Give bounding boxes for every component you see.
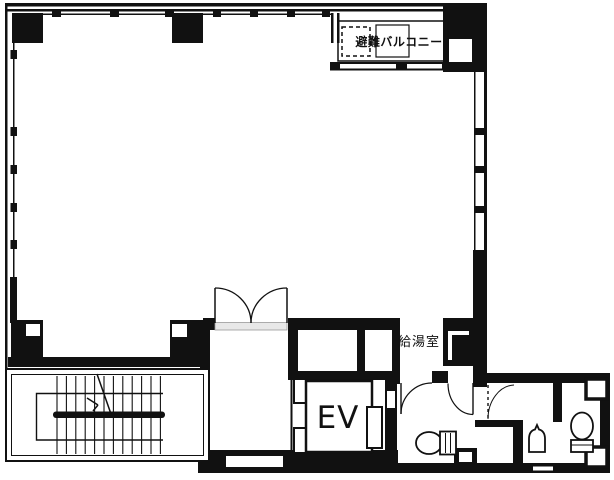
column-mid-south-notch	[172, 324, 187, 337]
toilet-west	[416, 432, 456, 455]
south-wall-right-segment	[288, 318, 400, 330]
hall-south-wall-slot	[226, 456, 283, 467]
elevator-label: EV	[317, 400, 360, 436]
floor-plan: 避難バルコニー 給湯室	[0, 0, 614, 480]
mullion	[322, 12, 330, 18]
wing-partition-east	[553, 383, 562, 422]
column-top-center	[172, 13, 203, 43]
wing-south-wall	[395, 463, 610, 473]
mullion	[474, 128, 487, 135]
double-door-sill	[215, 323, 287, 331]
balcony-partition-line-1	[331, 13, 334, 43]
wing-partition-horizontal	[475, 420, 523, 427]
column-top-right-window-notch	[449, 39, 472, 62]
column-bottom-left-notch	[26, 324, 40, 336]
balcony-window-mullion	[330, 62, 340, 71]
mullion	[287, 12, 295, 18]
toilet-tank	[571, 440, 593, 452]
toilet-bowl	[416, 432, 442, 454]
left-wall-solid-section	[10, 277, 17, 323]
elevator-counterweight	[367, 407, 382, 448]
toilet-tank	[440, 432, 456, 455]
shaft-east-wall	[385, 371, 397, 455]
balcony-window-top-line	[330, 62, 456, 64]
floor-plan-drawing: 避難バルコニー 給湯室	[0, 0, 614, 480]
stairwell	[6, 369, 209, 461]
mullion	[11, 127, 18, 136]
mullion	[11, 165, 18, 174]
kitchenette-divider-wall	[357, 318, 365, 374]
mullion	[474, 206, 487, 213]
balcony-window-bottom-line	[330, 69, 456, 71]
wing-south-wall-notch	[533, 467, 553, 471]
mullion	[250, 12, 258, 18]
top-wall-inner-line	[5, 9, 457, 12]
toilet-bowl	[571, 413, 593, 440]
balcony-label: 避難バルコニー	[355, 34, 442, 49]
stair-center-rail	[53, 412, 165, 419]
mullion	[11, 203, 18, 212]
wing-column-block-notch	[459, 452, 472, 462]
toilet-east	[571, 413, 593, 453]
south-wall-left-segment	[8, 357, 208, 367]
balcony-window-mullion	[442, 62, 455, 71]
left-wall-outer-line	[5, 3, 8, 369]
balcony-window-mullion	[396, 62, 407, 71]
right-window-line	[474, 72, 476, 252]
duct-shaft-top-right	[586, 379, 607, 399]
top-wall-outer-line	[5, 3, 487, 7]
mullion	[11, 240, 18, 249]
mullion	[474, 166, 487, 173]
mullion	[110, 12, 119, 18]
door-post-left	[203, 318, 215, 330]
shaft-east-wall-slot	[387, 391, 395, 408]
mullion	[213, 12, 221, 18]
kitchenette-west-wall	[288, 318, 298, 380]
wing-north-wall-post	[432, 371, 448, 383]
mullion	[52, 12, 61, 18]
column-top-left	[12, 13, 43, 43]
kitchenette-label: 給湯室	[398, 334, 440, 350]
corridor-duct-inner	[452, 335, 478, 366]
wing-partition-vertical	[513, 420, 523, 467]
mullion	[11, 50, 18, 59]
